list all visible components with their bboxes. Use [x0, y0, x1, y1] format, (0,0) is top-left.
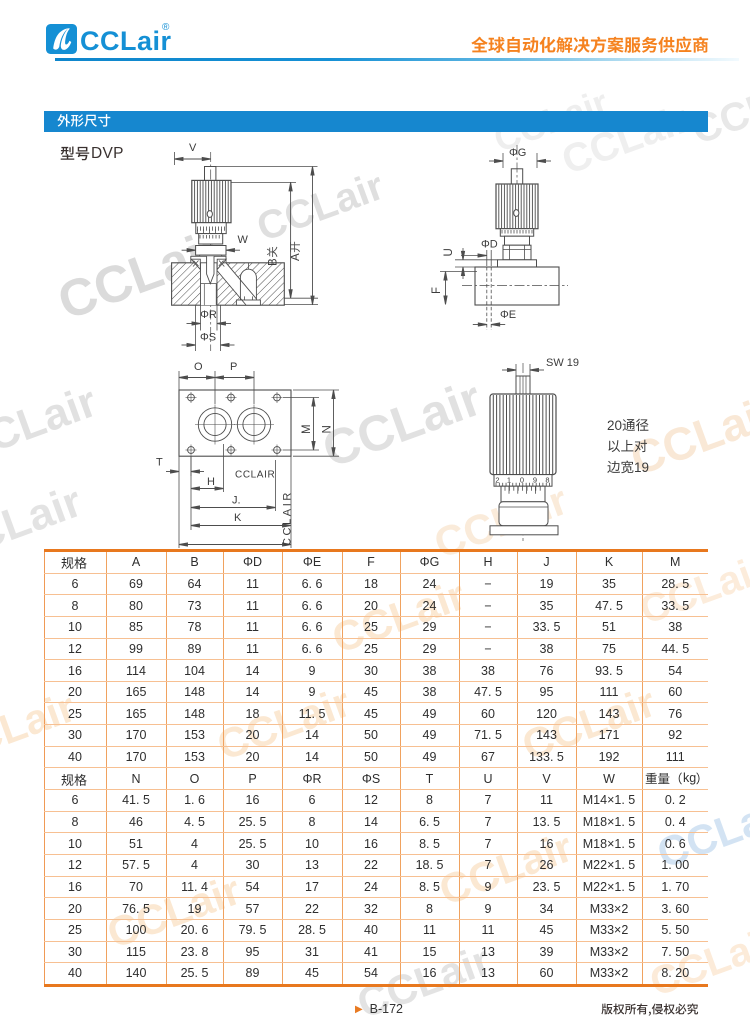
svg-text:N: N — [322, 425, 334, 433]
svg-text:ΦE: ΦE — [500, 309, 516, 321]
svg-text:20: 20 — [607, 418, 622, 433]
svg-text:M: M — [301, 424, 313, 434]
svg-text:T: T — [156, 457, 163, 469]
svg-text:SW 19: SW 19 — [546, 357, 579, 369]
svg-text:CCLAIR: CCLAIR — [282, 490, 294, 546]
svg-text:H: H — [207, 476, 215, 488]
svg-text:19: 19 — [634, 460, 649, 475]
svg-text:ΦD: ΦD — [481, 239, 498, 251]
svg-text:kg: kg — [683, 771, 696, 785]
svg-text:ΦR: ΦR — [200, 309, 217, 321]
svg-text:CCLAIR: CCLAIR — [235, 470, 275, 481]
svg-text:P: P — [230, 361, 237, 373]
svg-text:W: W — [238, 234, 249, 246]
svg-text:V: V — [189, 142, 197, 154]
svg-text:F: F — [431, 287, 443, 294]
svg-text:B: B — [268, 258, 280, 266]
svg-text:J.: J. — [232, 495, 241, 507]
svg-text:O: O — [194, 361, 203, 373]
svg-text:K: K — [234, 512, 242, 524]
svg-text:0: 0 — [520, 476, 524, 485]
svg-text:U: U — [443, 248, 455, 256]
svg-text:ΦG: ΦG — [509, 147, 526, 159]
svg-text:A: A — [290, 253, 302, 261]
svg-text:ΦS: ΦS — [200, 332, 216, 344]
